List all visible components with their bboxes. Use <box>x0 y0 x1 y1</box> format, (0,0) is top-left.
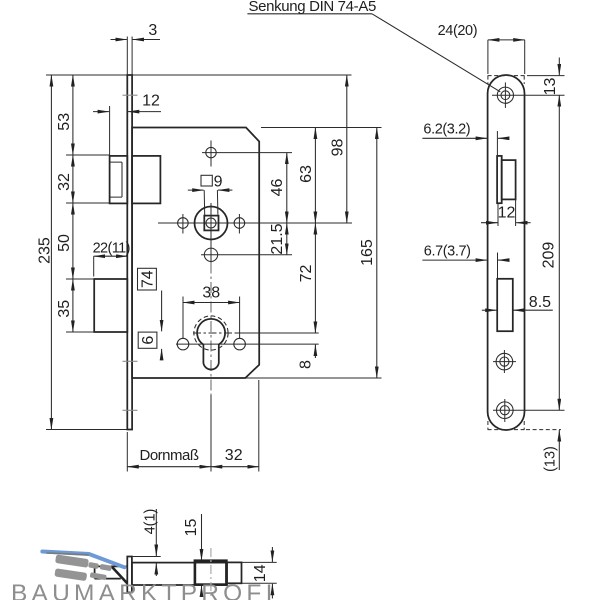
svg-text:8: 8 <box>298 360 315 369</box>
svg-text:74: 74 <box>140 270 157 288</box>
svg-text:Dornmaß: Dornmaß <box>139 447 198 464</box>
svg-text:6.7(3.7): 6.7(3.7) <box>424 244 471 260</box>
svg-text:72: 72 <box>298 265 315 283</box>
svg-text:13: 13 <box>542 78 559 96</box>
svg-text:209: 209 <box>541 242 558 269</box>
svg-text:9: 9 <box>214 173 223 190</box>
svg-text:38: 38 <box>202 285 220 302</box>
svg-text:BAUMARKTPROFI: BAUMARKTPROFI <box>11 580 277 600</box>
svg-text:53: 53 <box>56 113 73 131</box>
svg-text:(13): (13) <box>543 446 559 472</box>
svg-text:46: 46 <box>269 179 286 197</box>
svg-text:32: 32 <box>56 173 73 191</box>
svg-text:235: 235 <box>37 237 54 264</box>
svg-text:12: 12 <box>142 93 160 110</box>
svg-text:6.2(3.2): 6.2(3.2) <box>423 122 470 138</box>
svg-text:6: 6 <box>140 336 157 345</box>
svg-text:21.5: 21.5 <box>269 223 286 254</box>
svg-text:15: 15 <box>183 519 200 537</box>
svg-text:3: 3 <box>148 22 157 39</box>
svg-text:50: 50 <box>56 234 73 252</box>
svg-text:98: 98 <box>330 139 347 157</box>
svg-text:12: 12 <box>498 205 516 222</box>
svg-text:Senkung DIN 74-A5: Senkung DIN 74-A5 <box>249 0 376 15</box>
svg-text:22(11): 22(11) <box>93 241 130 257</box>
svg-text:32: 32 <box>225 447 243 464</box>
svg-text:35: 35 <box>56 300 73 318</box>
svg-text:165: 165 <box>359 239 376 266</box>
svg-text:24(20): 24(20) <box>438 23 478 39</box>
svg-text:4(1): 4(1) <box>143 509 159 535</box>
svg-text:63: 63 <box>298 165 315 183</box>
svg-text:8.5: 8.5 <box>529 294 551 311</box>
